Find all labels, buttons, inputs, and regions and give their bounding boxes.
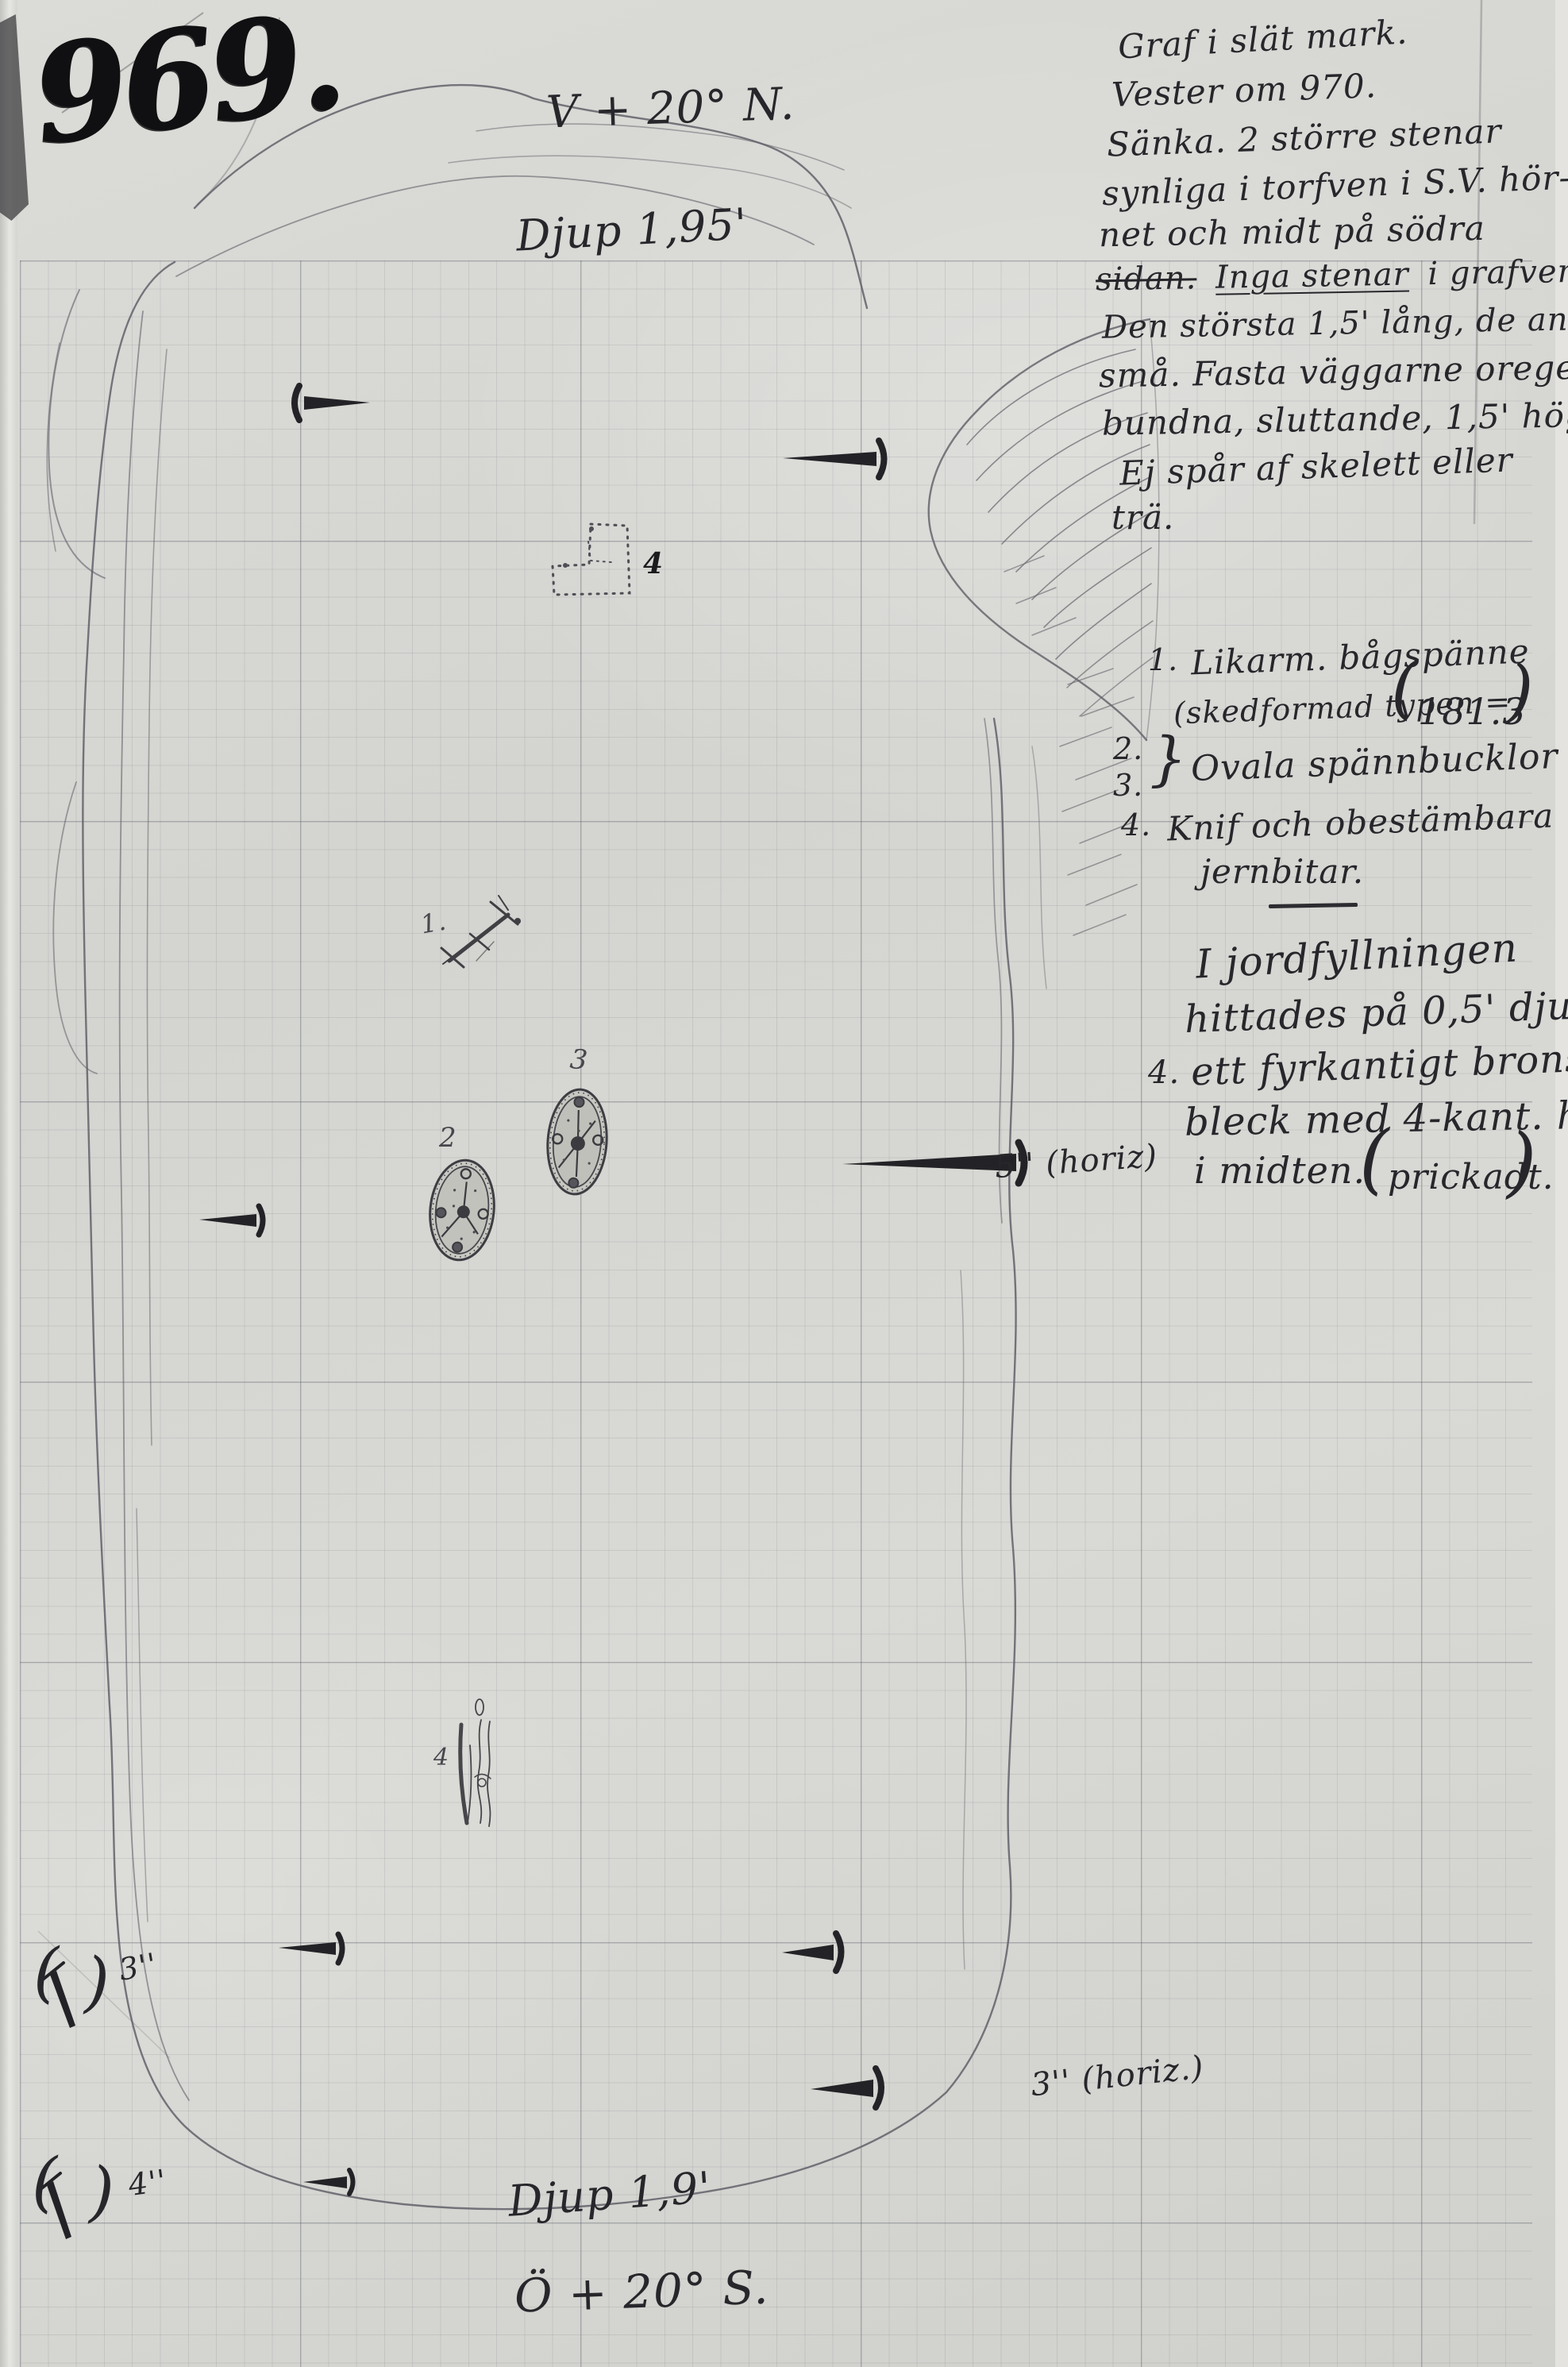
find-label-knife: 4 — [433, 1745, 449, 1771]
corner-marker-2-close-paren: ) — [89, 2163, 115, 2222]
note-line-6-struck: sidan. — [1096, 260, 1197, 298]
note-line-7: Den största 1,5' lång, de andra — [1102, 302, 1568, 344]
corner-marker-1-open-paren: ( — [33, 1944, 60, 2003]
burial-note-line-3-number: 4. — [1148, 1056, 1180, 1089]
find-label-bronze-plate: 4 — [643, 549, 664, 580]
note-line-5: net och midt på södra — [1099, 211, 1486, 253]
finds-item1-ref-open-paren: ( — [1391, 657, 1419, 719]
note-line-9: bundna, sluttande, 1,5' höga. — [1102, 397, 1568, 441]
find-label-brooch: 1. — [418, 908, 449, 939]
note-line-11: trä. — [1111, 500, 1174, 535]
corner-marker-2-size: 4'' — [126, 2165, 168, 2202]
finds-item4-text2: jernbitar. — [1200, 854, 1364, 889]
note-line-6: sidan. Inga stenar i grafven; — [1096, 255, 1568, 297]
nails — [40, 386, 1024, 2239]
find-label-oval-left: 2 — [439, 1124, 457, 1153]
note-line-8: små. Fasta väggarne oregel- — [1099, 349, 1568, 393]
note-line-6-underlined: Inga stenar — [1215, 256, 1410, 296]
corner-marker-1-size: 3'' — [117, 1949, 160, 1987]
finds-items23-brace: } — [1150, 729, 1188, 791]
knife-sketch-drawing — [460, 1699, 491, 1826]
nail-icon — [303, 2170, 353, 2194]
corner-marker-2-open-paren: ( — [32, 2153, 58, 2212]
finds-item3-number: 3. — [1113, 770, 1143, 802]
depth-top-label: Djup 1,95' — [515, 202, 749, 259]
nail-icon — [783, 441, 884, 477]
oval-brooch-right-drawing — [544, 1088, 610, 1197]
note-line-6-rest: i grafven; — [1427, 253, 1568, 293]
finds-item1-ref-close-paren: ) — [1507, 661, 1535, 722]
burial-note-close-paren: ) — [1507, 1128, 1537, 1196]
nail-icon — [782, 1933, 842, 1971]
oval-brooch-left-drawing — [426, 1157, 499, 1263]
finds-item2-number: 2. — [1113, 734, 1143, 765]
nail-icon — [295, 386, 370, 420]
burial-note-line-5: i midten. — [1194, 1151, 1366, 1189]
burial-note-open-paren: ( — [1359, 1124, 1389, 1193]
orientation-bottom-label: Ö + 20° S. — [514, 2263, 769, 2320]
finds-item1-number: 1. — [1148, 645, 1178, 677]
bronze-plate-drawing — [553, 524, 630, 595]
scanned-page: 969. V + 20° N. Djup 1,95' Djup 1,9' Ö +… — [0, 0, 1568, 2367]
nail-icon — [199, 1206, 263, 1235]
orientation-top-label: V + 20° N. — [545, 82, 796, 137]
nail-icon — [811, 2068, 881, 2107]
brooch-sketch-drawing — [441, 896, 521, 967]
find-label-oval-right: 3 — [568, 1046, 589, 1076]
page-number: 969. — [26, 0, 347, 166]
finds-item4-number: 4. — [1121, 810, 1151, 842]
nail-icon — [279, 1934, 342, 1963]
note-line-2: Vester om 970. — [1111, 68, 1377, 113]
corner-marker-1-close-paren: ) — [84, 1953, 110, 2012]
